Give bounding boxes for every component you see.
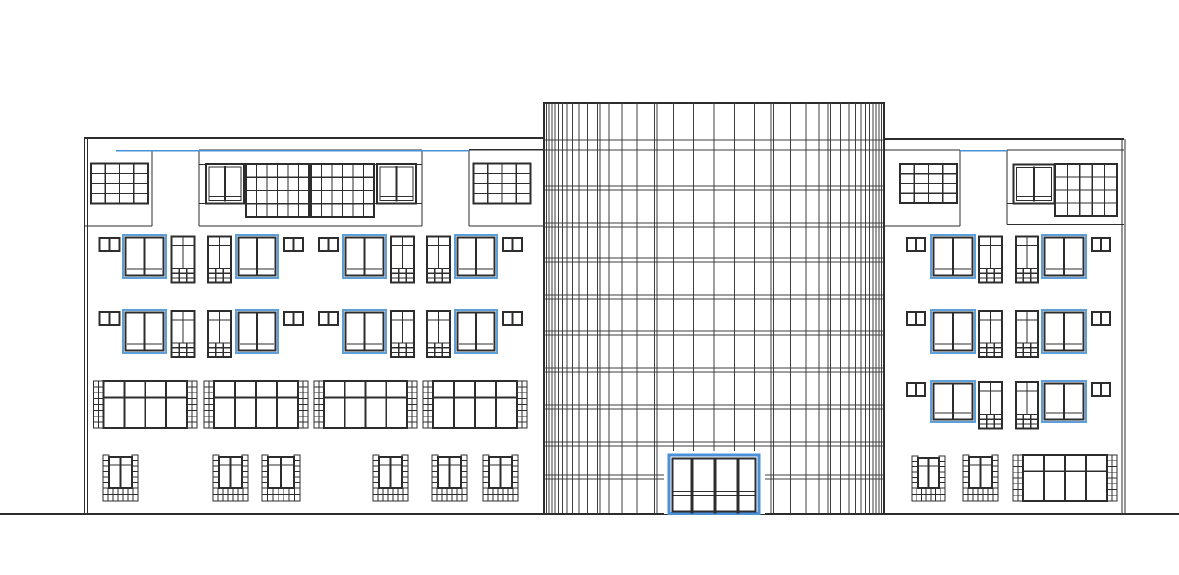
window-storefront [1013, 455, 1117, 501]
window-narrow-stack [172, 311, 195, 357]
window-vent-small [503, 312, 522, 325]
window-narrow-stack [427, 237, 450, 283]
window-blue-casement [1042, 310, 1086, 353]
window-storefront [94, 381, 198, 428]
window-grid [311, 164, 374, 217]
window-narrow-stack [979, 382, 1002, 429]
window-narrow-stack [208, 237, 231, 283]
window-brick-bordered [262, 455, 300, 501]
window-blue-casement [1042, 235, 1086, 278]
window-vent-small [907, 238, 925, 251]
window-narrow-stack [979, 311, 1002, 357]
window-brick-bordered [103, 455, 138, 501]
window-narrow-stack [1016, 311, 1038, 357]
window-vent-small [284, 312, 303, 325]
window-vent-small [907, 383, 925, 396]
window-brick-bordered [963, 455, 998, 501]
window-blue-casement [343, 235, 386, 278]
window-blue-casement [236, 235, 278, 278]
window-narrow-stack [1016, 382, 1038, 429]
window-vent-small [100, 312, 120, 325]
elevation-drawing [0, 0, 1179, 575]
window-brick-bordered [213, 455, 248, 501]
window-narrow-stack [427, 311, 450, 357]
window-blue-casement [455, 235, 497, 278]
window-blue-casement [931, 381, 975, 422]
window-narrow-stack [1016, 237, 1038, 283]
window-brick-bordered [483, 455, 518, 501]
window-blue-casement [123, 310, 166, 353]
window-narrow-stack [208, 311, 231, 357]
window-two-pane [377, 164, 416, 204]
window-blue-casement [931, 310, 975, 353]
window-grid [1055, 164, 1117, 216]
window-storefront [423, 381, 527, 428]
window-brick-bordered [432, 455, 467, 501]
cad-viewport [0, 0, 1179, 575]
window-narrow-stack [172, 237, 195, 283]
window-blue-casement [236, 310, 278, 353]
window-grid [246, 164, 309, 217]
window-vent-small [284, 238, 303, 251]
window-vent-small [100, 238, 120, 251]
window-vent-small [503, 238, 522, 251]
window-grid [474, 164, 531, 204]
window-blue-casement [1042, 381, 1086, 422]
window-vent-small [1092, 312, 1110, 325]
entrance-door [664, 451, 765, 514]
window-two-pane [1014, 165, 1055, 204]
window-blue-casement [455, 310, 497, 353]
window-vent-small [1092, 238, 1110, 251]
window-blue-casement [123, 235, 166, 278]
window-brick-bordered [373, 455, 408, 501]
window-vent-small [907, 312, 925, 325]
window-grid [91, 164, 148, 204]
window-two-pane [206, 164, 244, 204]
window-vent-small [1092, 383, 1110, 396]
window-blue-casement [931, 235, 975, 278]
window-storefront [314, 381, 417, 428]
window-narrow-stack [391, 311, 414, 357]
window-blue-casement [343, 310, 386, 353]
window-grid [900, 164, 957, 203]
window-storefront [204, 381, 308, 428]
window-vent-small [319, 238, 338, 251]
window-brick-bordered [912, 456, 945, 501]
window-narrow-stack [979, 237, 1002, 283]
window-narrow-stack [391, 237, 414, 283]
window-vent-small [319, 312, 338, 325]
